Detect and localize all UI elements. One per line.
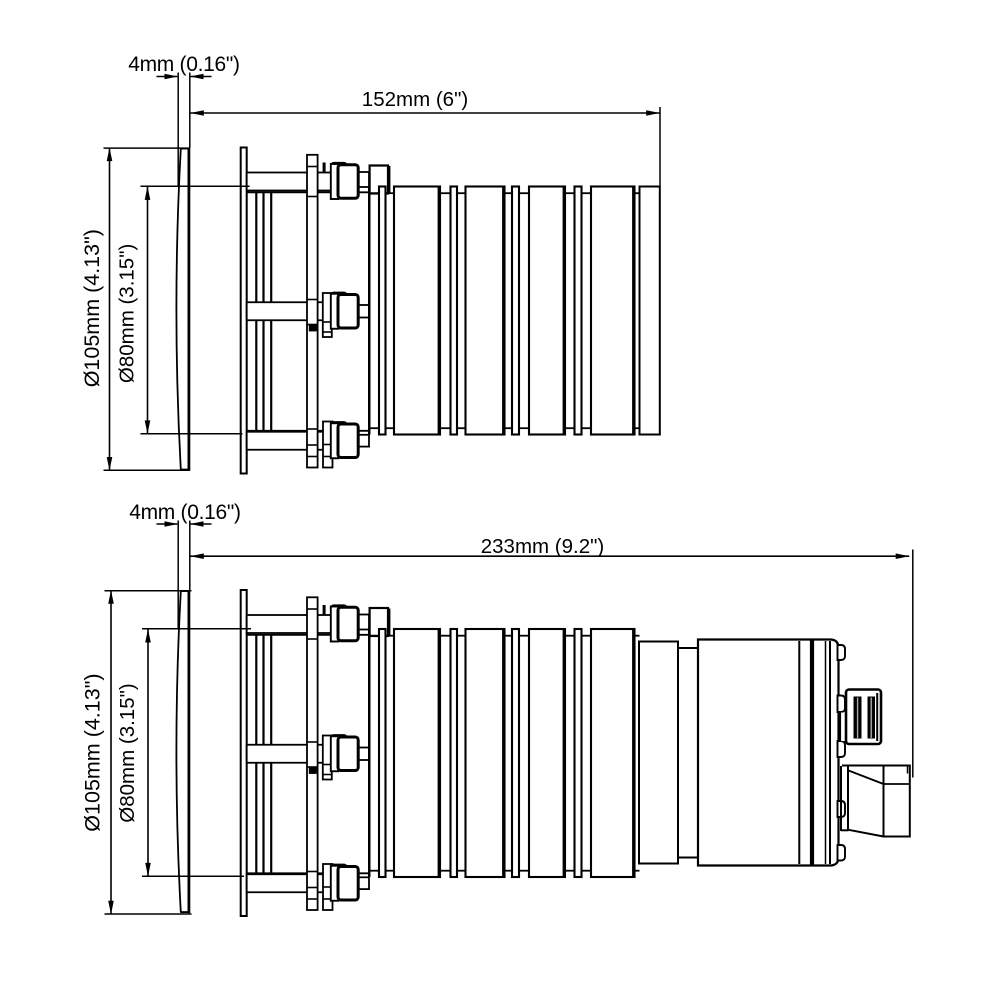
svg-text:Ø80mm (3.15"): Ø80mm (3.15") [116, 683, 139, 822]
svg-text:4mm (0.16"): 4mm (0.16") [128, 53, 240, 76]
svg-text:Ø105mm (4.13"): Ø105mm (4.13") [80, 229, 104, 387]
svg-text:Ø80mm (3.15"): Ø80mm (3.15") [115, 244, 138, 383]
svg-text:233mm (9.2"): 233mm (9.2") [481, 535, 604, 558]
svg-text:152mm (6"): 152mm (6") [362, 88, 468, 111]
svg-text:4mm (0.16"): 4mm (0.16") [129, 501, 241, 524]
svg-text:Ø105mm (4.13"): Ø105mm (4.13") [81, 674, 105, 832]
